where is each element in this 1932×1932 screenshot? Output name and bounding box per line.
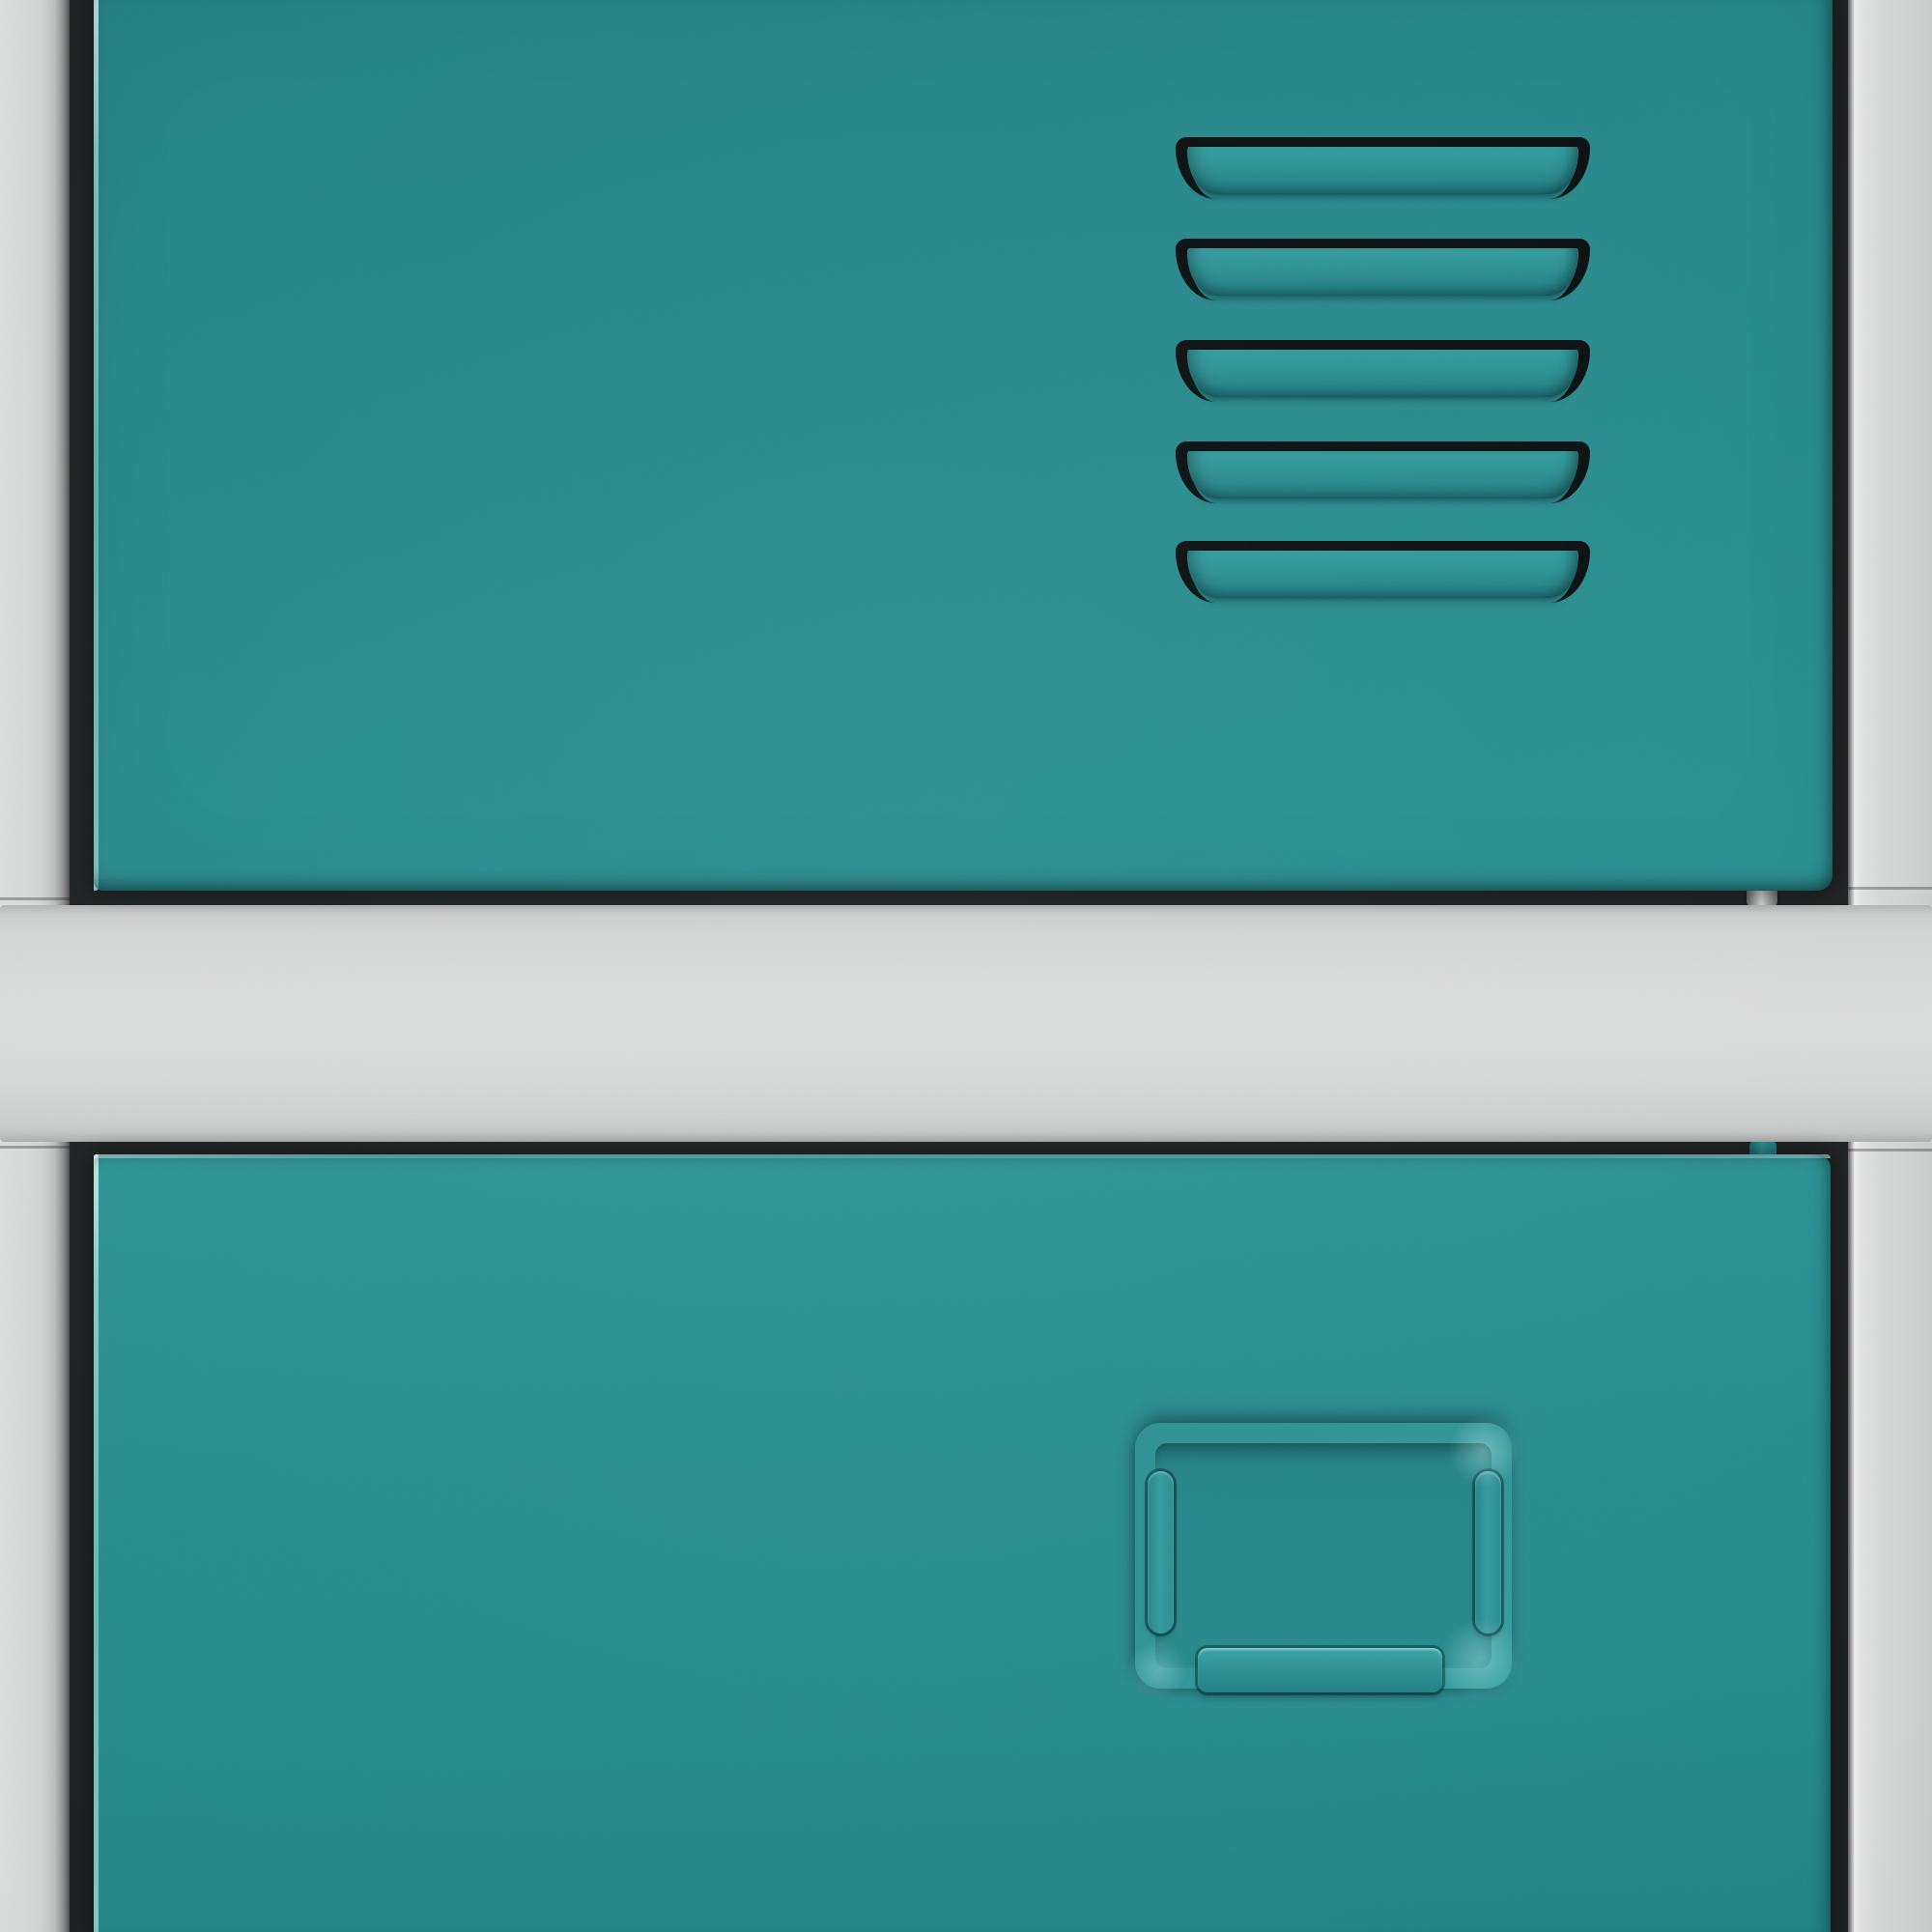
louver-face — [1187, 551, 1578, 598]
upper-locker-door — [94, 0, 1833, 891]
frame-shelf-band — [0, 905, 1932, 1142]
lower-locker-door — [94, 1154, 1831, 1932]
door-shading — [94, 1154, 1831, 1932]
vent-louvers — [1176, 0, 1590, 634]
louver-face — [1187, 451, 1578, 498]
louver-face — [1187, 350, 1578, 397]
frame-seam — [1848, 887, 1932, 890]
vent-louver — [1176, 541, 1590, 603]
louver-face — [1187, 147, 1578, 194]
label-holder-recess — [1155, 1443, 1492, 1668]
label-holder-right-tab — [1475, 1471, 1501, 1634]
door-edge-highlight — [94, 1154, 1831, 1158]
vent-louver — [1176, 239, 1590, 300]
vent-louver — [1176, 137, 1590, 199]
label-holder-bottom-tab — [1198, 1648, 1442, 1692]
door-edge-highlight — [94, 0, 99, 891]
frame-seam — [1848, 1149, 1932, 1151]
locker-closeup-photo — [0, 0, 1932, 1932]
door-edge-highlight — [94, 1154, 99, 1932]
louver-face — [1187, 248, 1578, 296]
vent-louver — [1176, 340, 1590, 402]
label-holder-left-tab — [1148, 1471, 1174, 1634]
label-card-holder — [1135, 1423, 1512, 1689]
frame-seam — [0, 1146, 70, 1149]
vent-louver — [1176, 441, 1590, 503]
frame-seam — [0, 897, 70, 900]
